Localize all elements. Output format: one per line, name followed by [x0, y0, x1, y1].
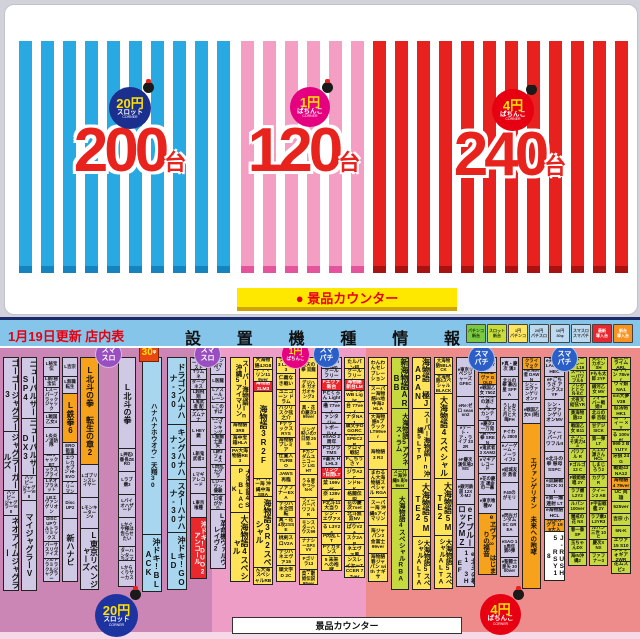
machine-cell: 犬夜叉 結弦YR	[568, 396, 587, 410]
machine-cell: リング 呪いの7日間 25th	[299, 424, 318, 450]
mascot-icon	[130, 589, 141, 600]
machine-cell: e東京ファンタジー	[321, 412, 342, 424]
machine-cell: 玉ちゃんDX	[568, 539, 587, 553]
machine-column: 海物語 極JAPANスーパー海物語In沖縄5LTP大海物語5MTE2大海物語5ス…	[412, 358, 431, 590]
machine-cell: P閃乱 LT	[321, 533, 342, 545]
machine-cell: 真・花4攻2SSE	[276, 517, 296, 534]
machine-cell: 真・花の慶次3 99ver	[299, 401, 318, 425]
stripe-20yen-slot	[19, 41, 32, 273]
machine-cell: 海ジャパン2 金富士 99ver	[368, 525, 388, 554]
badge-label: スマ	[558, 351, 572, 358]
machine-column: Lキン肉マンL医龍LアズールレーンLこのすばLシャーマンキングL聖闘士星矢L絆2…	[210, 358, 226, 569]
machine-column: ゴーゴージャグラー3ジャグラーガールズハッピージャグラーVIIIネオアイムジャグ…	[3, 358, 19, 591]
machine-column: わんわんセレブレーションスーパー海物語in地中海2 HLA大海物語5ブラック L…	[368, 358, 388, 582]
machine-cell: e双騎戦 SICK XII	[544, 478, 565, 496]
machine-cell: 冬のソナタNA1	[344, 412, 365, 424]
machine-cell: L新鬼武者3	[190, 445, 207, 468]
corner-label: CORNER	[505, 118, 520, 122]
machine-cell: L押忍!番長ZERO	[118, 448, 136, 472]
machine-cell: バジリスク弦之介	[276, 405, 296, 422]
machine-cell: クロマ戦記	[344, 445, 365, 457]
machine-cell: 牙狼SOCCER 77ver	[344, 566, 365, 578]
machine-cell: LBジャックBT	[43, 454, 60, 467]
machine-cell: 大海物語4スペシャルBLACK	[434, 374, 453, 394]
machine-cell: 大海物語5スペシャルALTA	[412, 536, 431, 590]
machine-cell: デジハネエヴァ15	[276, 549, 296, 566]
machine-cell: eデート・ア・ライブ 332R	[456, 425, 475, 451]
machine-cell: デジハネエヴァ風	[344, 544, 365, 556]
machine-cell: 999 2 BYUTY	[611, 441, 631, 454]
machine-cell: L秘宝伝	[43, 357, 60, 377]
machine-cell: 海物語3R2スペシャル	[253, 496, 273, 568]
denom-badge-20yen-slot: 20円スロットCORNER	[109, 87, 151, 129]
machine-cell: e戦国乙女 750Z	[478, 384, 497, 397]
update-date-label: 1月19日更新 店内表	[8, 326, 124, 345]
badge-20yen-slot: 20円スロットCORNER	[95, 594, 138, 637]
machine-cell: Fごちうさ Y	[344, 456, 365, 468]
machine-column: e東京リベンジャーズ GFECeRe:ゼロ season2eデート・ア・ライブ …	[456, 358, 475, 587]
machine-cell: eRe:ゼロ season2	[456, 396, 475, 426]
machine-cell: 犬夜叉RSPEC2R	[344, 434, 365, 446]
machine-cell: F40のがモリ	[500, 482, 519, 510]
machine-cell: スーパー海物語In沖縄5アイマリン	[230, 357, 250, 423]
machine-cell: 美空ひばりV2A	[344, 522, 365, 534]
machine-column: 大海物語4JG8アイマリン119ver海物語2LM3海物語3R2Fスーパー海 沖…	[253, 358, 273, 585]
machine-cell: 海物語 新台LM	[344, 379, 365, 391]
prize-counter-label: ● 景品カウンター	[296, 288, 398, 307]
machine-column: PAヘルメス MS3H0ハイスクールフリート2SFエヴァ 新台Pどくろん Lig…	[321, 358, 342, 571]
machine-cell: デジハネ ガオガオキング3	[299, 378, 318, 402]
machine-column: ハナハナホウオウ~天翔30沖ドキ!BLACK	[142, 358, 162, 592]
stripe-map-panel: 20円スロットCORNER1円ぱちんこCORNER4円ぱちんこCORNER 20…	[4, 4, 638, 315]
machine-cell: 海中宝箱HLA	[230, 434, 250, 448]
machine-grid: ゴーゴージャグラー3ジャグラーガールズハッピージャグラーVIIIネオアイムジャグ…	[0, 348, 640, 639]
machine-column: あすれたルパン初ハイスクールフリートS海物語 新台LMPどくろWB Light新…	[344, 358, 365, 578]
machine-column: 蒼天の拳 双龍デジハネ ガオガオキング3真・花の慶次3 99verリング 呪いの…	[299, 358, 318, 585]
machine-cell: 海IN沖縄2	[568, 552, 587, 566]
machine-cell: 結城友奈 128ver	[321, 489, 342, 501]
machine-column: ラブ嬢3 L2YR3仁義なき戦いユニコーン ドラムバジリスク弦之介FデラックスR…	[276, 358, 296, 582]
title-char: 置	[237, 325, 253, 349]
machine-cell: マイジャグラーV	[21, 500, 37, 591]
badge-label: ぱちんこ	[287, 357, 305, 362]
machine-cell: ToLoveる L3Y24	[321, 522, 342, 534]
machine-cell: 大海物語5MTE2	[412, 479, 431, 537]
machine-cell: 大海物語4スペシャル	[434, 393, 453, 479]
machine-cell: 海物語2LM3	[253, 381, 273, 392]
machine-cell: エウレカセブン HI-EVO	[62, 454, 78, 482]
machine-cell: スターハナハナ-30	[167, 479, 187, 533]
machine-cell: Fもも太郎 2YF	[589, 370, 608, 384]
machine-cell: eFごちうさ アークス2YF	[544, 376, 565, 400]
machine-cell: 海物語 極JAPAN	[412, 357, 431, 409]
badge-label: パチ	[475, 359, 489, 366]
machine-cell: うる星やつら N-K	[299, 474, 318, 498]
machine-cell: ハイスクールフリートS	[344, 368, 365, 380]
machine-cell: 海物語3R2F	[253, 391, 273, 479]
machine-cell: 新ハナビ	[62, 518, 78, 582]
machine-cell: e北斗の拳11 3HEF	[456, 547, 475, 587]
machine-cell: 大海物語5ブラック LT99ver	[368, 413, 388, 442]
machine-column: 大海物語5BLACK大海物語4スペシャルBLACK大海物語4スペシャル大海物語5…	[434, 358, 453, 589]
count-digits: 240	[454, 127, 545, 183]
machine-cell: 沖ドキ!GOLD	[167, 532, 187, 590]
machine-cell: Lこのすば	[210, 402, 226, 418]
machine-cell: eSAO 10周年 第0弾	[500, 536, 519, 558]
machine-cell: 沖ドキ!DUO2 アンコール	[190, 517, 207, 579]
machine-cell: ナナシーSP3 VV	[299, 537, 318, 555]
machine-cell: 銀河乙女 MV	[589, 383, 608, 397]
machine-cell: LBエヴァンゲリオン	[43, 493, 60, 517]
machine-cell: e海物語 HCL	[544, 507, 565, 520]
machine-cell: Lマギアレコード	[190, 467, 207, 494]
machine-cell: 転生スライム ARL	[611, 357, 631, 370]
title-char: 情	[392, 325, 408, 349]
machine-count-1yen-pachinko: 120台	[221, 123, 387, 179]
machine-cell: 慶次X NX	[589, 539, 608, 553]
machine-cell: Disc UP2	[62, 493, 78, 519]
machine-cell: シン・エヴァX	[321, 511, 342, 523]
machine-cell: e結城友奈 勇者	[500, 463, 519, 483]
mascot-icon	[513, 589, 524, 600]
machine-cell: スマートボール14	[321, 423, 342, 435]
machine-cell: 中森明菜 199ver	[321, 478, 342, 490]
machine-column: eSAO クライマックスe新鬼武者 DAWNシン・エヴァンゲリオンYe戦国乙女6…	[522, 358, 541, 589]
machine-column: e天膳 BLACK SHECeFごちうさ アークス2YFシン・エヴァンゲリオンM…	[544, 358, 565, 581]
legend-chip: スロット 新台	[487, 324, 507, 343]
machine-cell: L戦国乙女4	[43, 412, 60, 428]
machine-cell: L北斗の拳	[118, 357, 136, 449]
machine-cell: Tラムネ	[190, 369, 207, 380]
machine-cell: 真・ゴジラA2C	[344, 467, 365, 479]
pachinko-floor-info-poster: { "top": { "groups": [ {"name":"20yen-sl…	[0, 0, 640, 639]
machine-column: e第一精鋭 AMTSeSDエヴァ GOLDe戦国乙女 750ZeF大工の源さんe…	[478, 358, 497, 575]
machine-cell: アイマリン119ver	[253, 369, 273, 382]
machine-cell: Lフレックスブライト	[43, 466, 60, 479]
machine-cell: Fエヴァ 新台	[321, 379, 342, 391]
machine-cell: うしおととら 月と大晦FH	[500, 399, 519, 427]
machine-cell: eSDエヴァ GOLD	[478, 372, 497, 385]
machine-cell: e東京喰種W	[478, 494, 497, 514]
machine-cell: 頭文字D 2C	[276, 565, 296, 582]
machine-cell: 牙狼 24G	[611, 453, 631, 466]
machine-cell: sin大夢 V38	[611, 393, 631, 406]
machine-cell: 大海物語4JG8	[253, 357, 273, 370]
machine-column: F真・慶次 漢3北斗の拳 暴凶星 SFPAうしおととら 月と大晦FHPぐわん 2…	[500, 358, 519, 577]
machine-cell: L東京リベンジャーズ	[80, 528, 99, 590]
machine-cell: e銀河鉄道 12XX-MJ	[456, 479, 475, 505]
machine-cell: FデラックスRYS	[276, 421, 296, 438]
machine-cell: リング格闘伝説	[344, 489, 365, 501]
machine-cell: 天才バカボン SH	[589, 357, 608, 371]
stripe-4yen-pachinko	[395, 41, 408, 273]
badge-label: スロ	[201, 355, 215, 362]
machine-cell: ハッピージャグラーVIII	[21, 475, 37, 501]
machine-cell: まわるん大海物語スペシャル RGA	[368, 469, 388, 498]
legend-chip: 1円 パチンコ	[508, 324, 528, 343]
machine-cell: eF大工の源さん	[478, 396, 497, 409]
machine-cell: Pガンダムユニコーン LIGHT	[299, 449, 318, 475]
machine-cell: Pどくろん Light	[321, 390, 342, 402]
machine-cell: バーサスリヴァイズ	[43, 541, 60, 559]
machine-count-4yen-pachinko: 240台	[420, 127, 600, 183]
machine-cell: e第一爆連射 LT	[544, 495, 565, 508]
machine-cell: モンスターハンターライズ	[118, 546, 136, 561]
mascot-icon	[322, 82, 333, 93]
machine-cell: モンスターハウス99	[299, 518, 318, 538]
machine-info-board: 1月19日更新 店内表 設置機種情報 パチンコ 新台スロット 新台1円 パチンコ…	[0, 317, 640, 639]
machine-cell: L医龍	[210, 374, 226, 388]
machine-cell: あすれたルパン初	[344, 357, 365, 369]
machine-cell: Lジーワン優駿	[210, 479, 226, 495]
machine-cell: シン・エヴァンゲリオンY	[522, 381, 541, 403]
machine-cell: 大工の源さん HCL	[589, 448, 608, 462]
machine-cell: 北斗の拳 百裂	[589, 409, 608, 423]
legend-chip: パチンコ 新台	[466, 324, 486, 343]
machine-cell: 大海物語5アグネス・ラム	[391, 408, 409, 470]
machine-cell: ダークネス	[190, 379, 207, 390]
machine-cell: L HEY鏡	[190, 421, 207, 446]
machine-cell: L無職転生	[62, 376, 78, 394]
machine-cell: 大海物語5スペシャルALTA	[434, 535, 453, 589]
machine-cell: 新一番櫓 77ver	[321, 401, 342, 413]
machine-cell: ToLoveる 100ver	[611, 429, 631, 442]
machine-cell: うしおととら N-KC	[568, 383, 587, 397]
machine-column: ニューパルサーSP4ニューパルサーDX3ハッピージャグラーVIIIマイジャグラー…	[21, 358, 37, 591]
machine-cell: 海物語プレミア	[276, 437, 296, 454]
machine-cell: eノーゲーム・ノーライフ2	[500, 442, 519, 464]
machine-cell: クイーン2 AB	[589, 487, 608, 501]
corner-label: CORNER	[109, 624, 124, 628]
machine-cell: J-RUSH5 RSY18	[544, 531, 565, 581]
legend-chip: スマスロ スマパチ	[571, 324, 591, 343]
count-digits: 120	[248, 123, 339, 179]
machine-cell: Lアズールレーン	[210, 387, 226, 403]
machine-cell: ルパン 100ver	[568, 500, 587, 514]
board-title: 設置機種情報	[185, 325, 460, 349]
machine-cell: Lからくりサーカス	[118, 560, 136, 587]
machine-cell: カグラ R	[589, 474, 608, 488]
badge-30phi: 30φ	[139, 348, 159, 362]
machine-cell: ゴブリンスレイヤーT	[344, 555, 365, 567]
machine-cell: ルパン三世 10C	[589, 526, 608, 540]
machine-cell: F宇宙戦艦 2Y	[589, 500, 608, 514]
machine-cell: エヴァ15 S10	[611, 537, 631, 550]
machine-cell: L超飛翔	[190, 389, 207, 400]
machine-cell: 桃剣スロV2A	[276, 533, 296, 550]
machine-cell: 大海物語4スペシャルRBA	[391, 488, 409, 590]
machine-cell: デジハネ全回転	[276, 501, 296, 518]
machine-cell: 海物語3R8	[230, 422, 250, 435]
legend-chips: パチンコ 新台スロット 新台1円 パチンコ20円 パチスロ10円 30φスマスロ…	[466, 324, 633, 343]
machine-column: 天才バカボン SHFもも太郎 2YF銀河乙女 MVフィーバー戦姫II北斗の拳 百…	[589, 358, 608, 566]
machine-cell: ジャグラーガールズ	[3, 431, 19, 491]
machine-cell: Lネオプラネット	[43, 478, 60, 494]
machine-cell: F真・慶次 漢3	[500, 357, 519, 377]
machine-cell: Lバイオハザード	[118, 494, 136, 518]
machine-cell: 大海物語4スペシャル	[230, 512, 250, 582]
machine-column: スーパー海物語In沖縄5アイマリン海物語3R8海中宝箱HLAPA大海物語RE3大…	[230, 358, 250, 582]
denom-label: 20円	[116, 97, 143, 110]
machine-cell: 新海物語ARBB	[391, 357, 409, 409]
mascot-icon	[526, 84, 537, 95]
machine-cell: ハイスクールフリート2S	[321, 368, 342, 380]
machine-cell: リング 7日間LT	[321, 467, 342, 479]
prize-counter-ribbon: ● 景品カウンター	[237, 288, 457, 311]
machine-cell: eSAO 2周年	[321, 434, 342, 446]
info-header-bar: 1月19日更新 店内表 設置機種情報 パチンコ 新台スロット 新台1円 パチンコ…	[0, 317, 640, 348]
count-unit: 台	[338, 145, 360, 177]
machine-cell: Lラブ嬢3	[118, 471, 136, 495]
title-char: 報	[444, 325, 460, 349]
machine-cell: L聖闘士星矢	[210, 434, 226, 450]
machine-cell: シン・エヴァンゲリオンMV	[544, 399, 565, 427]
machine-cell: L絆2フォース	[210, 449, 226, 465]
machine-cell: Lプリズムナナ	[190, 409, 207, 422]
machine-cell: Fゴルゴ13 C	[568, 461, 587, 475]
corner-label: CORNER	[122, 116, 137, 120]
machine-cell: F戦姫絶唱 2Y	[568, 474, 587, 488]
machine-cell: Lリゼロ鬼がかり	[210, 494, 226, 510]
machine-cell: Pゴリラ13	[299, 554, 318, 570]
badge-4yen-pachinko: 4円ぱちんこCORNER	[480, 594, 521, 635]
title-char: 設	[185, 325, 201, 349]
machine-cell: PどくろWB Light	[344, 390, 365, 402]
machine-cell: 大海物語5MTE2	[434, 478, 453, 536]
corner-label: CORNER	[302, 115, 317, 119]
machine-cell: eゆゆゆ カンテラ	[478, 408, 497, 421]
machine-cell: スーパー海沖縄5 彩99ver	[391, 469, 409, 489]
machine-cell: まわるん大海スペシャルRBA	[253, 567, 273, 585]
machine-cell: 仁義なき戦い	[276, 373, 296, 390]
badge-label: スロ	[102, 355, 116, 362]
machine-cell: e新鬼武者 DAWN	[522, 369, 541, 382]
machine-cell: L閃乱カグラ	[210, 464, 226, 480]
prize-counter-sign: 景品カウンター	[232, 617, 462, 634]
machine-cell: ウマ娘 NA1	[611, 381, 631, 394]
machine-cell: eヱヴァ∞ はじまりの福音	[478, 513, 497, 575]
machine-cell: Pデカダンス	[321, 544, 342, 556]
machine-cell: 花ムスビ2	[611, 561, 631, 574]
machine-cell: 沖ドキ!BLACK	[142, 534, 162, 592]
count-unit: 台	[164, 145, 186, 177]
machine-cell: L鬼武者 配	[190, 399, 207, 410]
machine-column: L秘宝伝L新!秘宝伝LスーパーブラックジャックL戦国乙女4L炎炎ノ消防隊LBジャ…	[43, 358, 60, 582]
machine-column: L北斗の拳L押忍!番長ZEROLラブ嬢3LバイオハザードLかぐや様は告らせたいモ…	[118, 358, 136, 587]
denom-label: 1円	[300, 96, 320, 109]
machine-cell: 甘デジ SICK	[589, 422, 608, 436]
machine-cell: e北斗の拳 慈母 SSPC	[544, 451, 565, 479]
legend-chip: 10円 30φ	[550, 324, 570, 343]
machine-cell: 戦国乙女 B11	[568, 422, 587, 436]
badge-label: パチ	[320, 355, 334, 362]
machine-cell: PA大海物語RE3	[230, 447, 250, 466]
machine-cell: ようこそ実力4a	[568, 435, 587, 449]
machine-column: ドラゴンハナハナ-30キングハナハナ-30スターハナハナ-30沖ドキ!GOLD	[167, 358, 187, 590]
machine-cell: GフレンドN-K	[344, 478, 365, 490]
machine-cell: L鉄拳6	[62, 393, 78, 443]
machine-cell: 奥海物語22	[568, 409, 587, 423]
machine-cell: e花の慶次 運命の一幕	[478, 473, 497, 495]
machine-cell: Lかぐや様は告らせたい	[118, 517, 136, 547]
machine-cell: 大海物語5BLACK	[434, 357, 453, 375]
machine-cell: 大海物語4SP BLACK	[230, 465, 250, 513]
machine-cell: Lスーパーブラックジャック	[43, 387, 60, 413]
legend-chip: 20円 パチスロ	[529, 324, 549, 343]
machine-cell: 北斗の拳 暴凶星 SFPA	[500, 376, 519, 400]
machine-cell: 第一弾 LT	[589, 435, 608, 449]
machine-column: 転生スライム ARLロイヤン 78verウマ娘 NA1sin大夢 V38忍法帖 …	[611, 358, 631, 574]
machine-column: L北斗の拳 転生の章2LゴブリンスレイヤーLモンキーターンVL東京リベンジャーズ	[80, 358, 99, 590]
machine-cell: 北斗無双NV	[344, 511, 365, 523]
denom-badge-1yen-pachinko: 1円ぱちんこCORNER	[290, 87, 330, 127]
machine-cell: 新一番台 77ver	[344, 401, 365, 413]
mascot-icon	[143, 82, 154, 93]
machine-cell: e戦国乙女6 (暁)	[522, 402, 541, 424]
machine-cell: L東京喰種	[190, 493, 207, 518]
machine-cell: 閃乱カグラ 199大入	[544, 519, 565, 532]
machine-cell: Pゴジラ TMS	[321, 445, 342, 457]
machine-cell: e鬼武者3 XAM2	[478, 444, 497, 457]
machine-cell: LモンキーターンV	[80, 497, 99, 529]
machine-cell: ドラゴンハナハナ-30	[167, 357, 187, 425]
machine-cell: ファフナー3	[589, 552, 608, 566]
machine-cell: L新!秘宝伝	[43, 376, 60, 388]
machine-cell: キングハナハナ-30	[167, 424, 187, 480]
machine-cell: Pぐわん 2800	[500, 426, 519, 443]
machine-cell: スーパー海物語In沖縄5LTP	[412, 408, 431, 480]
stripe-4yen-pachinko	[615, 41, 628, 273]
machine-cell: 魔戒の花 NX	[568, 513, 587, 527]
machine-cell: ゴーゴージャグラー3	[3, 357, 19, 432]
machine-cell: UC 両雄	[611, 489, 631, 502]
machine-cell: パワフル R	[568, 448, 587, 462]
machine-cell: スーパー海物語in地中海2 HLA	[368, 385, 388, 414]
machine-cell: 頭文字D GGRC	[344, 423, 365, 435]
legend-chip: 新台 導入台	[613, 324, 633, 343]
machine-column: 新海物語ARBB大海物語5アグネス・ラムスーパー海沖縄5 彩99ver大海物語4…	[391, 358, 409, 590]
machine-cell: ユニコーン ドラム	[276, 389, 296, 406]
machine-cell: ラブ嬢 L2Y3	[568, 487, 587, 501]
count-digits: 200	[74, 123, 165, 179]
machine-cell: 鬼浜ZERO 新鬼武者	[62, 442, 78, 455]
machine-column: アズールレーン L19スーパーパワフル5うしおととら N-KC犬夜叉 結弦YR奥…	[568, 358, 587, 566]
machine-cell: フィーバーパワフルR	[299, 497, 318, 519]
machine-cell: エヴァ15 未来への咆哮	[321, 555, 342, 571]
machine-cell: 押忍!サラリーマン番長	[62, 481, 78, 494]
machine-cell: 海物語 春ジャパン with ナギサ	[368, 553, 388, 582]
machine-cell: e聖闘士星矢 3000ver	[500, 557, 519, 577]
machine-cell: L革命機ヴァルヴレイヴ2	[210, 509, 226, 569]
machine-cell: e蒼天の拳 SREN	[478, 432, 497, 445]
denom-badge-4yen-pachinko: 4円ぱちんこCORNER	[492, 89, 534, 131]
legend-chip: 最新 導入台	[592, 324, 612, 343]
machine-cell: ハッピージャグラーVIII	[3, 490, 19, 516]
corner-label: CORNER	[493, 623, 508, 627]
phi-label: φ	[153, 349, 157, 355]
machine-cell: e閃光ガンダムSC GREA	[500, 509, 519, 537]
machine-cell: Lゴブリンスレイヤー	[80, 464, 99, 498]
machine-cell: ハナハナホウオウ~天翔30	[142, 357, 162, 535]
machine-cell: Lシャーマンキング	[210, 417, 226, 435]
machine-cell: わんわんセレブレーション	[368, 357, 388, 386]
machine-cell: P北斗11 大当り	[321, 500, 342, 512]
machine-column: L吉宗L無職転生L鉄拳6鬼浜ZERO 新鬼武者エウレカセブン HI-EVO押忍!…	[62, 358, 78, 582]
machine-cell: バジリスク2AB	[344, 533, 365, 545]
title-char: 機	[289, 325, 305, 349]
machine-cell: ニューパルサーDX3	[21, 418, 37, 476]
machine-cell: L北斗の拳 転生の章2	[80, 357, 99, 465]
